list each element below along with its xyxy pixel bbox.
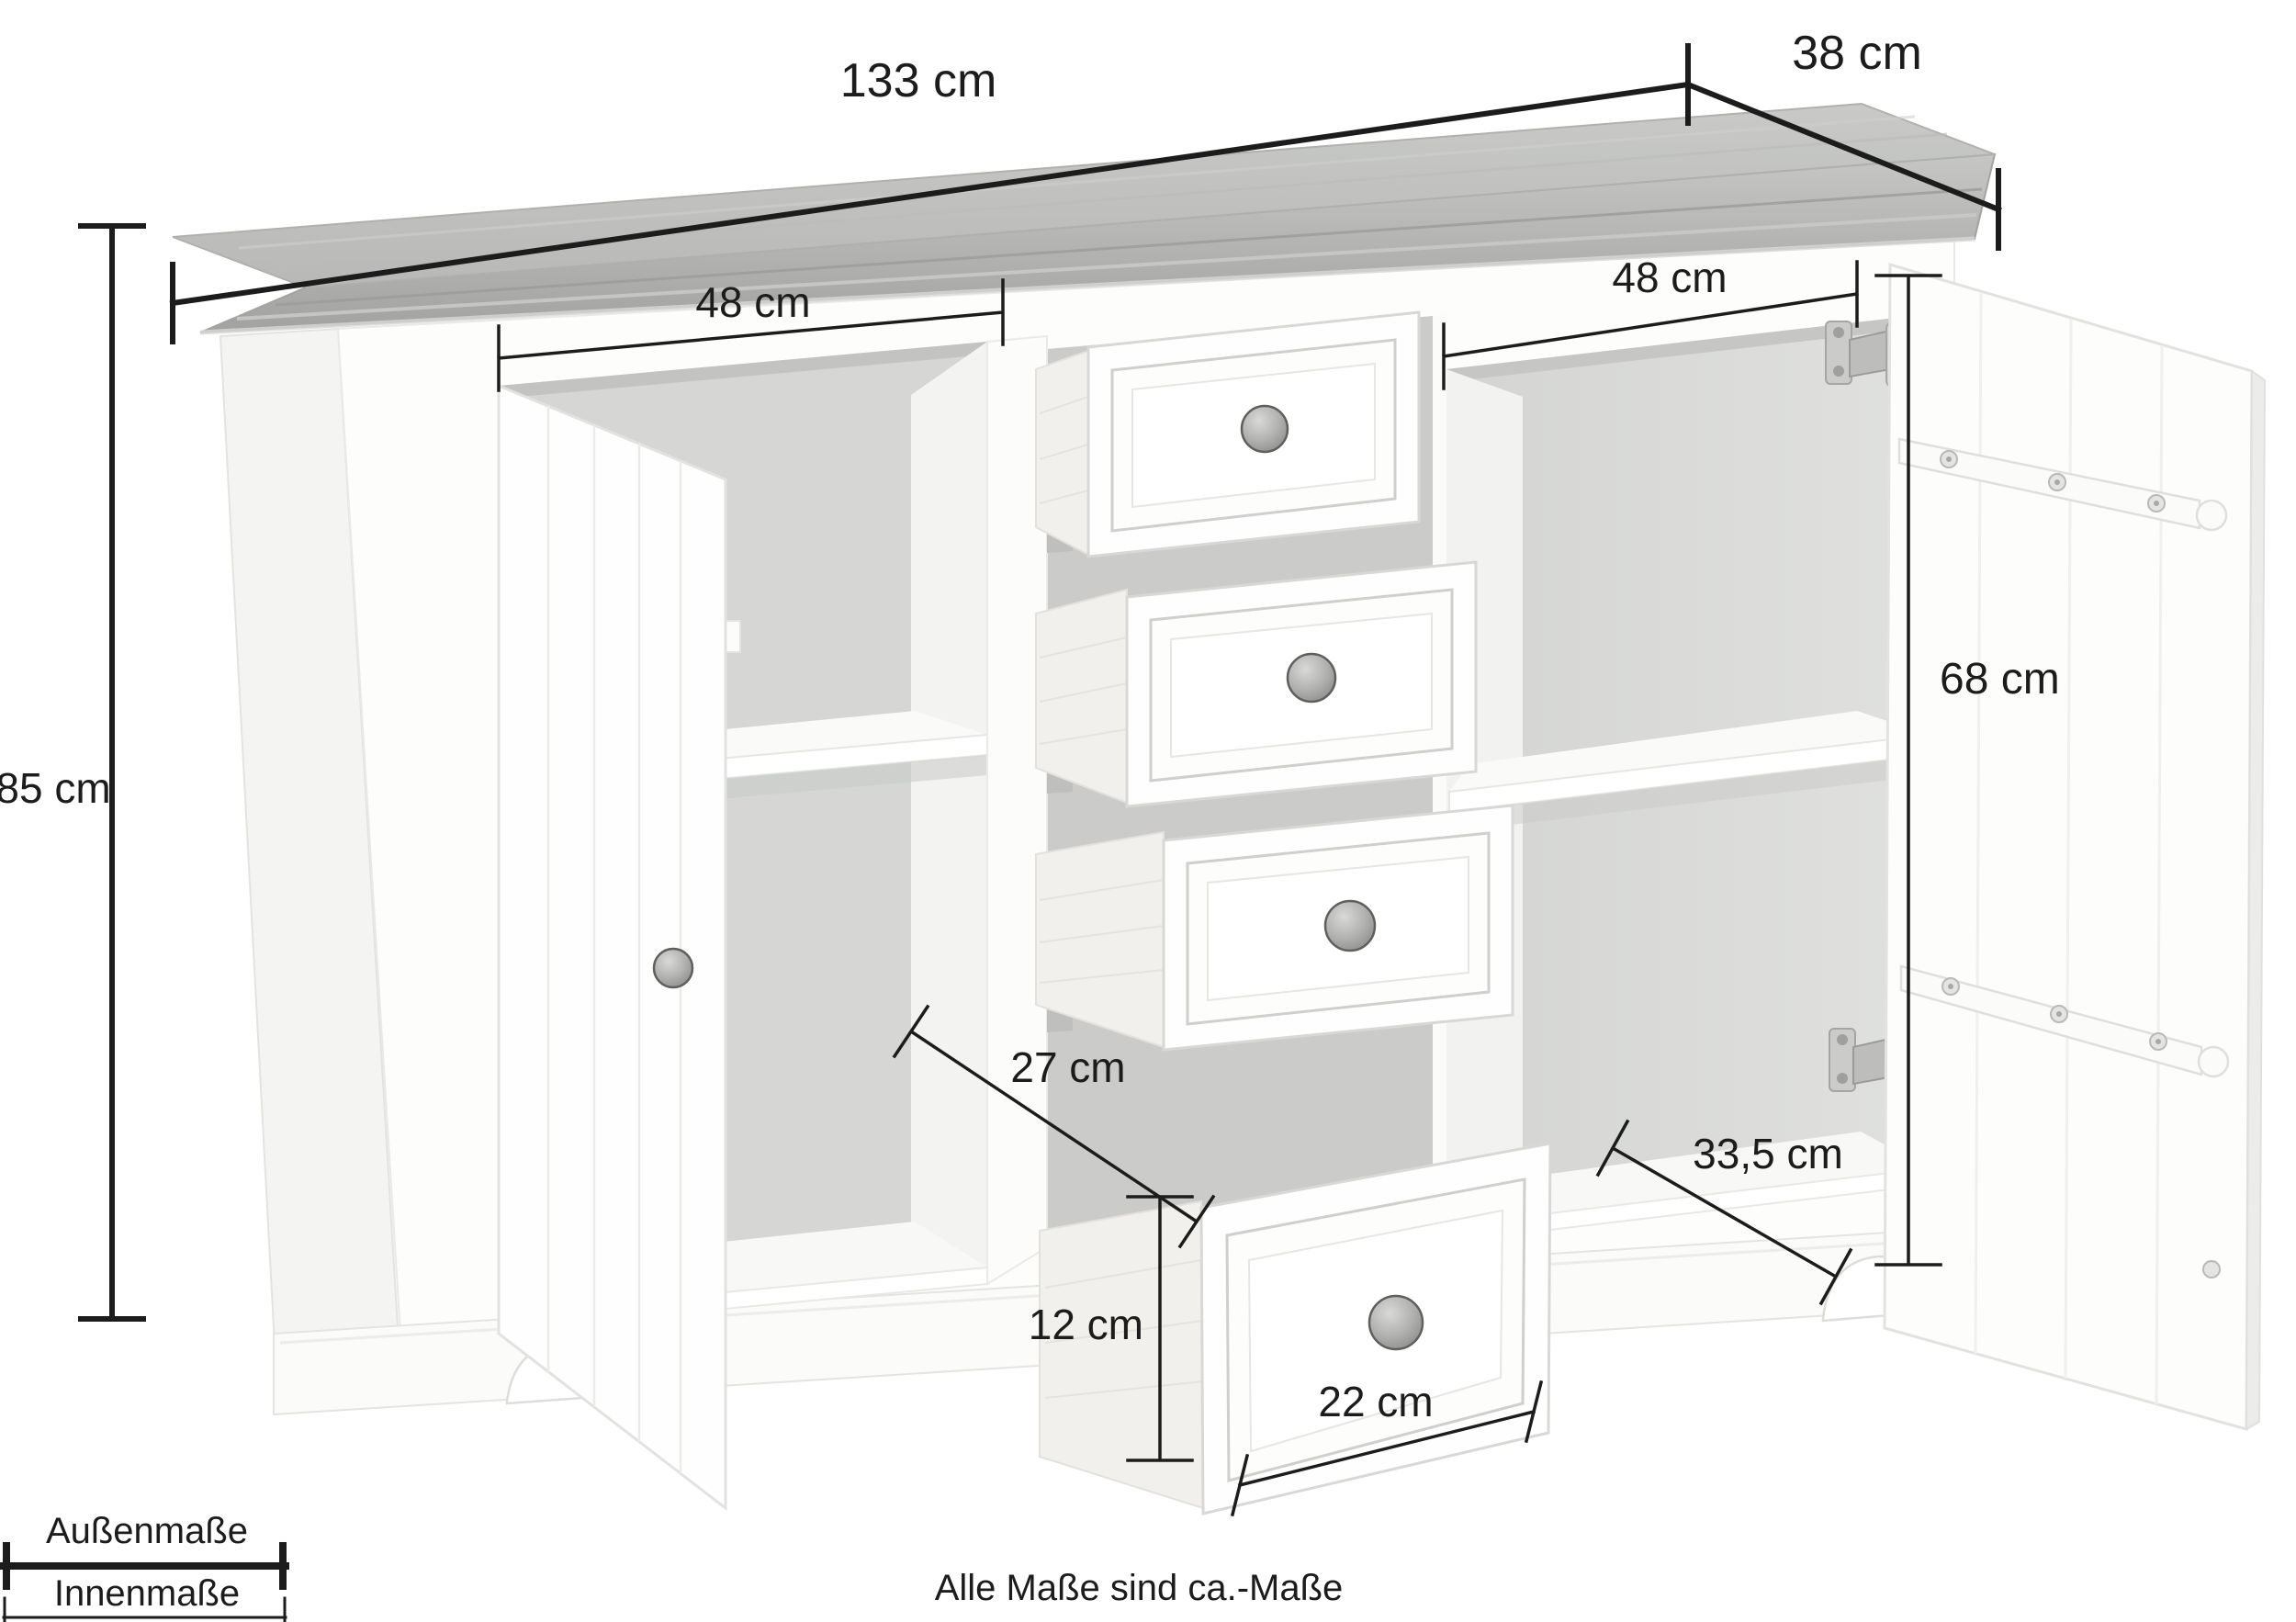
right-compartment bbox=[1446, 314, 1929, 1242]
dim-outer-width-label: 133 cm bbox=[840, 54, 997, 107]
drawer-2-knob bbox=[1288, 654, 1335, 702]
legend-outer-label: Außenmaße bbox=[46, 1511, 248, 1551]
footnote: Alle Maße sind ca.-Maße bbox=[935, 1568, 1344, 1608]
left-compartment-right-wall bbox=[911, 342, 987, 1284]
product-dimension-diagram: 133 cm 38 cm 85 cm 48 cm 48 cm 68 cm 27 … bbox=[0, 0, 2296, 1622]
drawer-2-box-side bbox=[1036, 590, 1127, 803]
left-door bbox=[499, 386, 726, 1508]
left-door-panel bbox=[499, 386, 726, 1508]
dim-inner-depth-label: 33,5 cm bbox=[1693, 1130, 1843, 1177]
drawer-3-knob bbox=[1325, 901, 1375, 951]
right-door-screw bbox=[2203, 1261, 2220, 1278]
dim-door-height-label: 68 cm bbox=[1940, 655, 2060, 704]
dim-inner-width-right-label: 48 cm bbox=[1612, 253, 1727, 301]
sideboard-diagram-canvas: 133 cm 38 cm 85 cm 48 cm 48 cm 68 cm 27 … bbox=[0, 0, 2296, 1622]
legend: Außenmaße Innenmaße bbox=[4, 1511, 286, 1622]
drawer-2 bbox=[1036, 562, 1476, 806]
dim-outer-height: 85 cm bbox=[0, 226, 143, 1319]
dim-outer-depth-label: 38 cm bbox=[1792, 27, 1922, 80]
drawer-1 bbox=[1036, 312, 1419, 557]
center-stile-right bbox=[1433, 314, 1446, 1244]
left-door-knob bbox=[654, 949, 692, 987]
drawer-4-box-side bbox=[1040, 1201, 1203, 1508]
drawer-1-knob bbox=[1242, 406, 1288, 452]
dim-shelf-clearance-label: 27 cm bbox=[1010, 1043, 1125, 1091]
drawer-3 bbox=[1036, 805, 1513, 1050]
dim-plinth-height-label: 12 cm bbox=[1029, 1301, 1143, 1348]
dim-drawer-front-width-label: 22 cm bbox=[1318, 1378, 1433, 1425]
sideboard-illustration bbox=[173, 104, 2265, 1514]
right-door bbox=[1885, 265, 2265, 1429]
legend-inner-label: Innenmaße bbox=[54, 1573, 240, 1614]
dim-outer-height-label: 85 cm bbox=[0, 764, 111, 812]
dim-inner-width-left-label: 48 cm bbox=[695, 278, 810, 326]
drawer-4-knob bbox=[1369, 1296, 1423, 1349]
